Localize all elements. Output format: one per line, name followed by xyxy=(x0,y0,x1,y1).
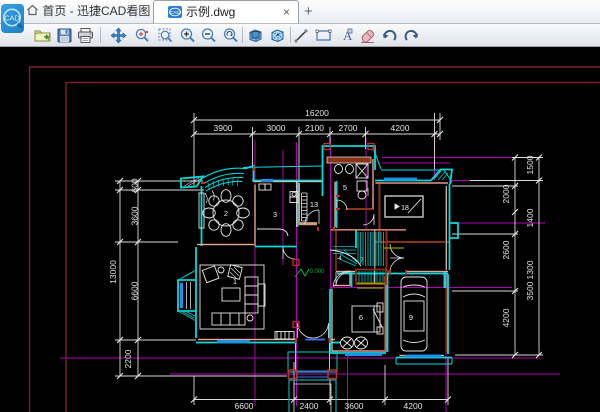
svg-text:0.000: 0.000 xyxy=(309,269,325,275)
svg-text:CAD: CAD xyxy=(170,10,180,15)
svg-text:1500: 1500 xyxy=(525,155,535,174)
svg-text:1400: 1400 xyxy=(525,208,535,227)
svg-text:4: 4 xyxy=(338,256,342,262)
svg-text:3: 3 xyxy=(273,210,277,219)
svg-text:2200: 2200 xyxy=(123,349,133,368)
svg-text:2600: 2600 xyxy=(501,240,511,259)
svg-text:3600: 3600 xyxy=(130,206,140,225)
svg-text:13: 13 xyxy=(310,200,318,209)
svg-text:9: 9 xyxy=(409,313,413,322)
svg-text:2000: 2000 xyxy=(501,184,511,203)
svg-text:2100: 2100 xyxy=(305,123,324,133)
svg-text:18: 18 xyxy=(401,205,409,212)
svg-text:2400: 2400 xyxy=(300,401,319,411)
svg-text:3600: 3600 xyxy=(345,401,364,411)
svg-text:16200: 16200 xyxy=(305,108,329,118)
svg-text:6: 6 xyxy=(359,313,363,322)
svg-text:13000: 13000 xyxy=(108,260,118,284)
svg-text:1: 1 xyxy=(233,277,237,286)
svg-text:3500: 3500 xyxy=(525,281,535,300)
svg-text:7: 7 xyxy=(360,258,364,264)
svg-text:CAD: CAD xyxy=(4,14,20,23)
svg-text:1300: 1300 xyxy=(525,260,535,279)
svg-text:2700: 2700 xyxy=(339,123,358,133)
svg-text:5: 5 xyxy=(343,183,347,192)
svg-text:600: 600 xyxy=(130,178,140,192)
svg-text:6600: 6600 xyxy=(235,401,254,411)
svg-text:3000: 3000 xyxy=(267,123,286,133)
svg-text:4200: 4200 xyxy=(404,401,423,411)
svg-text:6600: 6600 xyxy=(130,281,140,300)
svg-text:3900: 3900 xyxy=(214,123,233,133)
svg-text:4200: 4200 xyxy=(391,123,410,133)
svg-text:4200: 4200 xyxy=(501,308,511,327)
svg-text:2: 2 xyxy=(224,209,228,218)
